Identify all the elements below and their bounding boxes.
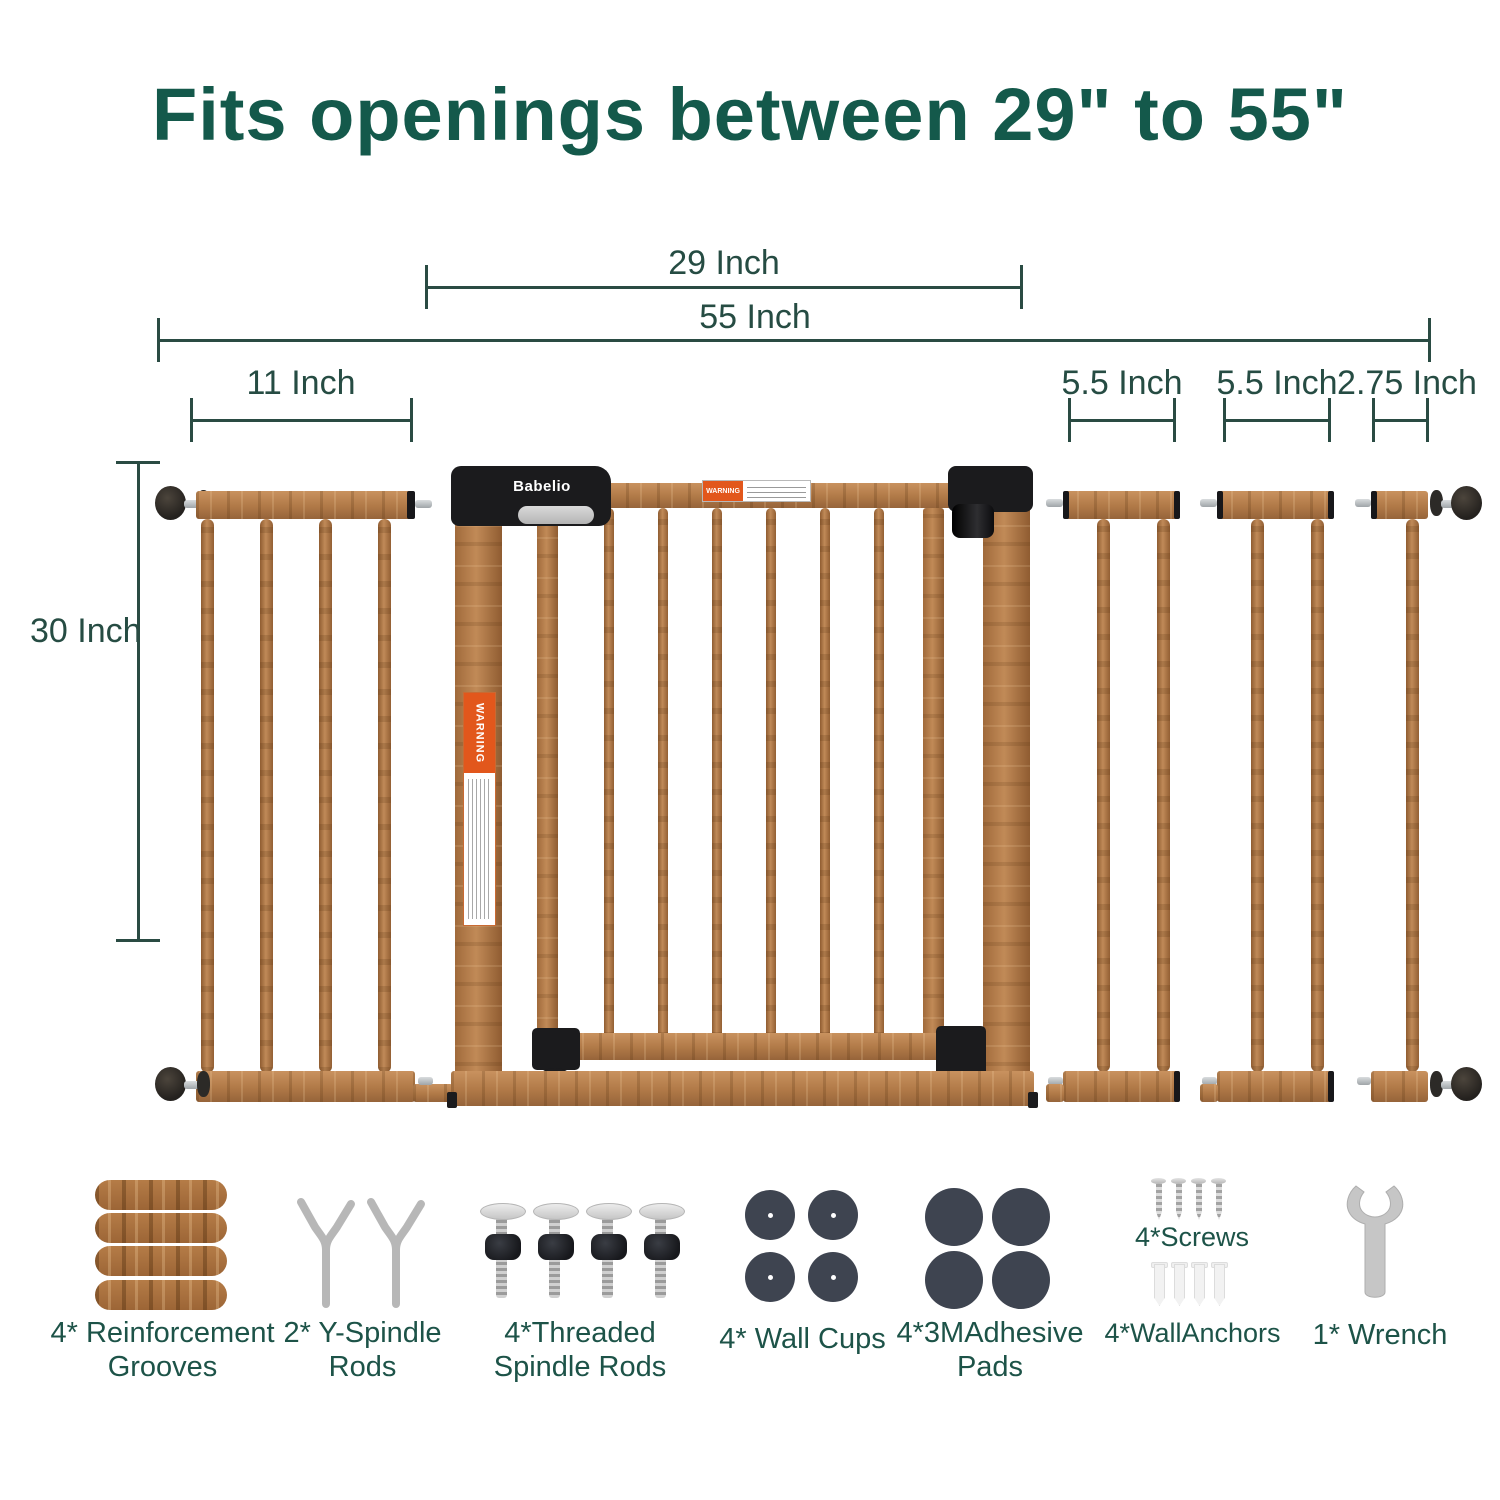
tick	[190, 398, 193, 442]
rod-knob	[591, 1234, 627, 1260]
tick	[1426, 398, 1429, 442]
gate-bar	[378, 519, 391, 1073]
screw-icon	[1176, 1182, 1182, 1220]
gate-bar	[1406, 519, 1419, 1072]
brand-logo: Babelio	[502, 478, 582, 495]
tick	[410, 398, 413, 442]
gate-right-post	[983, 469, 1030, 1106]
door-bar	[658, 508, 668, 1038]
label-line: Grooves	[35, 1350, 290, 1384]
gate-bar	[319, 519, 332, 1073]
cup-hole	[831, 1275, 836, 1280]
cup-hole	[768, 1275, 773, 1280]
door-latch-foot	[532, 1028, 580, 1070]
end-cap	[1174, 491, 1180, 519]
rod-disc	[533, 1203, 579, 1220]
page-title: Fits openings between 29" to 55"	[0, 72, 1500, 157]
dimension-line	[137, 461, 140, 942]
tick	[116, 939, 160, 942]
dimension-right-extension-2-label: 5.5 Inch	[1217, 364, 1338, 403]
door-bar	[766, 508, 776, 1038]
label-line: 4*Screws	[1118, 1222, 1266, 1253]
dimension-line	[425, 286, 1023, 289]
connector-pin	[1357, 1077, 1371, 1085]
accessory-label: 2* Y-Spindle Rods	[280, 1316, 445, 1384]
extension-top-rail	[1217, 491, 1334, 519]
y-spindle-rods-icon	[288, 1190, 436, 1308]
end-cap	[1328, 491, 1334, 519]
extension-bottom-step	[1200, 1084, 1218, 1102]
dimension-gate-width-label: 29 Inch	[668, 244, 780, 283]
end-cap	[1328, 1071, 1334, 1102]
rod-knob	[485, 1234, 521, 1260]
wall-knob-icon	[155, 486, 186, 520]
gate-bar	[1097, 519, 1110, 1072]
adhesive-pad-icon	[992, 1251, 1050, 1309]
tick	[1020, 265, 1023, 309]
label-line: 4*3MAdhesive	[890, 1316, 1090, 1350]
wall-knob-icon	[1451, 1067, 1482, 1101]
dimension-height-label: 30 Inch	[30, 612, 142, 651]
connector-pin	[415, 500, 432, 508]
warning-text-lines	[747, 484, 806, 498]
rod-disc	[586, 1203, 632, 1220]
tick	[1372, 398, 1375, 442]
rod-disc	[639, 1203, 685, 1220]
accessory-label: 4*WallAnchors	[1100, 1318, 1285, 1349]
latch-handle	[518, 506, 594, 524]
connector-pin	[1200, 499, 1217, 507]
wall-anchor-icon	[1194, 1264, 1205, 1306]
wall-knob-icon	[1451, 486, 1482, 520]
adhesive-pad-icon	[925, 1188, 983, 1246]
door-bar	[874, 508, 884, 1038]
wood-strip-icon	[95, 1180, 227, 1210]
cup-hole	[768, 1213, 773, 1218]
gate-bar	[1311, 519, 1324, 1072]
label-line: Rods	[280, 1350, 445, 1384]
dimension-line	[1068, 419, 1176, 422]
wall-knob-icon	[155, 1067, 186, 1101]
wall-cup-icon	[808, 1190, 858, 1240]
door-bottom-rail	[537, 1033, 944, 1060]
door-right-stile	[923, 508, 944, 1038]
warning-text-lines	[468, 779, 491, 919]
dimension-left-extension-label: 11 Inch	[246, 364, 355, 403]
wall-cup-icon	[808, 1252, 858, 1302]
extension-bottom-rail	[1063, 1071, 1180, 1102]
warning-icon: WARNING	[703, 481, 743, 501]
tick	[157, 318, 160, 362]
extension-top-rail	[1063, 491, 1180, 519]
rod-disc	[480, 1203, 526, 1220]
gate-bar	[260, 519, 273, 1073]
warning-label-top: WARNING	[702, 480, 811, 502]
wood-strip-icon	[95, 1213, 227, 1243]
wall-cup-icon	[745, 1190, 795, 1240]
connector-pin	[1355, 499, 1371, 507]
wall-cup-icon	[745, 1252, 795, 1302]
rod-knob	[538, 1234, 574, 1260]
panel-top-rail	[196, 491, 415, 519]
product-infographic: Fits openings between 29" to 55" 29 Inch…	[0, 0, 1500, 1500]
tick	[1068, 398, 1071, 442]
warning-label-side: WARNING	[463, 692, 496, 926]
label-line: 4* Reinforcement	[35, 1316, 290, 1350]
end-cap	[1063, 491, 1069, 519]
label-line: Spindle Rods	[470, 1350, 690, 1384]
label-line: 4* Wall Cups	[700, 1322, 905, 1356]
dimension-max-width-label: 55 Inch	[699, 298, 811, 337]
accessory-label: 1* Wrench	[1310, 1318, 1450, 1352]
tick	[1328, 398, 1331, 442]
screw-head	[1171, 1178, 1186, 1184]
accessory-label: 4*Screws	[1118, 1222, 1266, 1253]
threshold-foot	[447, 1092, 457, 1108]
panel-bottom-rail	[196, 1071, 415, 1102]
tick	[1428, 318, 1431, 362]
label-line: 4*Threaded	[470, 1316, 690, 1350]
extension-bottom-step	[1046, 1084, 1064, 1102]
tick	[116, 461, 160, 464]
extension-top-rail	[1371, 491, 1428, 519]
rod-knob	[644, 1234, 680, 1260]
extension-bottom-rail	[1371, 1071, 1428, 1102]
door-bar	[712, 508, 722, 1038]
accessory-label: 4* Wall Cups	[700, 1322, 905, 1356]
gate-bar	[1251, 519, 1264, 1072]
warning-icon: WARNING	[464, 693, 495, 773]
dimension-right-extension-1-label: 5.5 Inch	[1062, 364, 1183, 403]
connector-pin	[418, 1077, 433, 1085]
tick	[425, 265, 428, 309]
dimension-line	[190, 419, 413, 422]
dimension-line	[1372, 419, 1429, 422]
screw-icon	[1216, 1182, 1222, 1220]
threshold-foot	[1028, 1092, 1038, 1108]
wrench-icon	[1342, 1180, 1412, 1305]
tick	[1223, 398, 1226, 442]
screw-icon	[1196, 1182, 1202, 1220]
dimension-line	[1223, 419, 1331, 422]
knob-flange	[197, 1071, 210, 1097]
wood-strip-icon	[95, 1246, 227, 1276]
label-line: Pads	[890, 1350, 1090, 1384]
wall-anchor-icon	[1154, 1264, 1165, 1306]
gate-bar	[201, 519, 214, 1073]
label-line: 1* Wrench	[1310, 1318, 1450, 1352]
door-bar	[820, 508, 830, 1038]
end-cap	[1371, 491, 1377, 519]
screw-icon	[1156, 1182, 1162, 1220]
wood-strip-icon	[95, 1280, 227, 1310]
tick	[1173, 398, 1176, 442]
cup-hole	[831, 1213, 836, 1218]
end-cap	[1217, 491, 1223, 519]
extension-bottom-rail	[1217, 1071, 1334, 1102]
accessory-label: 4*Threaded Spindle Rods	[470, 1316, 690, 1384]
accessory-label: 4*3MAdhesive Pads	[890, 1316, 1090, 1384]
wall-anchor-icon	[1214, 1264, 1225, 1306]
screw-head	[1191, 1178, 1206, 1184]
gate-hinge-cylinder	[952, 504, 994, 538]
connector-pin	[1046, 499, 1063, 507]
gate-threshold	[451, 1071, 1034, 1106]
wall-anchor-icon	[1174, 1264, 1185, 1306]
label-line: 2* Y-Spindle	[280, 1316, 445, 1350]
end-cap	[407, 491, 415, 519]
door-left-stile	[537, 508, 558, 1038]
accessory-label: 4* Reinforcement Grooves	[35, 1316, 290, 1384]
door-bar	[604, 508, 614, 1038]
dimension-right-extension-3-label: 2.75 Inch	[1337, 364, 1477, 403]
label-line: 4*WallAnchors	[1100, 1318, 1285, 1349]
end-cap	[1174, 1071, 1180, 1102]
adhesive-pad-icon	[925, 1251, 983, 1309]
dimension-line	[157, 339, 1431, 342]
adhesive-pad-icon	[992, 1188, 1050, 1246]
screw-head	[1151, 1178, 1166, 1184]
screw-head	[1211, 1178, 1226, 1184]
gate-bar	[1157, 519, 1170, 1072]
